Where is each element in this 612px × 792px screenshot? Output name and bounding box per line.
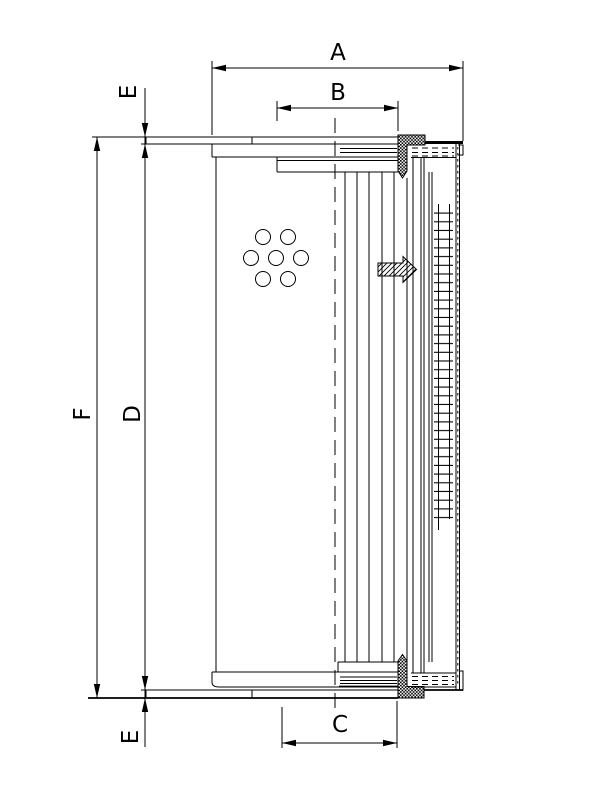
wire-mesh — [434, 204, 453, 530]
dimension-e-top-label: E — [116, 85, 142, 100]
dimension-e-bottom-label: E — [118, 730, 144, 745]
filter-element-technical-drawing: A B C F D E E — [0, 0, 612, 792]
dimension-f-label: F — [70, 407, 96, 420]
dimension-b-label: B — [330, 80, 346, 106]
dimension-a-label: A — [330, 40, 346, 66]
paper-background — [0, 0, 612, 792]
drawing-sheet: A B C F D E E — [0, 0, 612, 792]
dimension-c-label: C — [332, 712, 348, 738]
mesh-rungs — [434, 207, 453, 521]
dimension-d-label: D — [120, 405, 146, 423]
